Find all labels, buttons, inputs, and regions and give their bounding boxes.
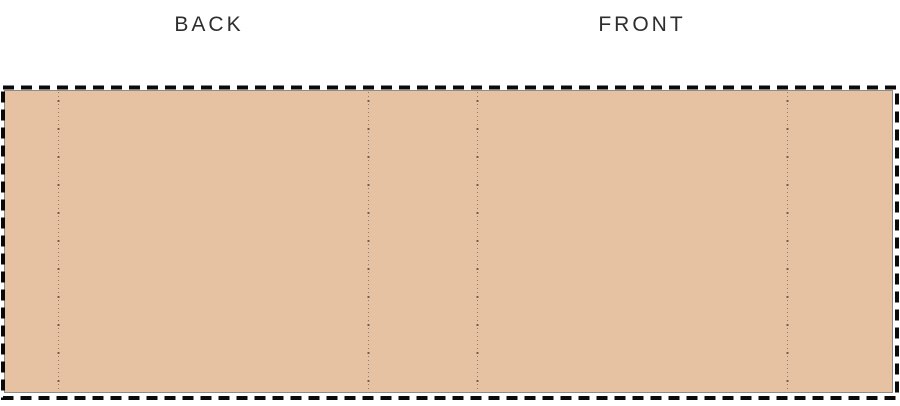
panel-fill-area — [5, 91, 893, 393]
dieline-canvas: BACK FRONT — [0, 0, 900, 406]
dieline-drawing — [0, 0, 900, 406]
